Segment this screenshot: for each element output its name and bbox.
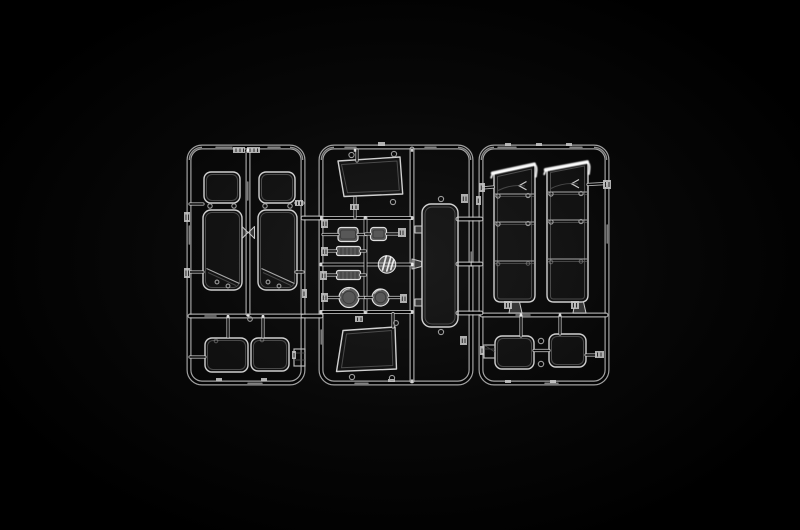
part-number-tab <box>603 180 611 189</box>
quarter-window-pane <box>259 172 295 203</box>
glazing-panel <box>422 204 458 327</box>
part-number-tab <box>595 351 604 358</box>
panel-tab <box>415 299 422 306</box>
sprue-photo: Clear transparent plastic model kit spru… <box>0 0 800 530</box>
product-photo: Clear transparent plastic model kit spru… <box>0 0 800 530</box>
rear-window-pane <box>251 338 289 371</box>
rear-window-pane <box>495 336 534 369</box>
rear-window-pane <box>549 334 586 367</box>
mold-tick <box>505 380 511 383</box>
part-number-tab <box>295 200 303 206</box>
part-number-tab <box>378 142 385 146</box>
part-number-tab <box>355 316 363 322</box>
part-number-tab <box>479 183 485 192</box>
rear-window-pane <box>205 338 248 372</box>
part-number-tab <box>350 204 359 210</box>
part-number-tab <box>504 301 512 309</box>
round-lamp-lens <box>372 289 389 306</box>
door-window-pane <box>258 210 297 290</box>
panel-tab <box>415 226 422 233</box>
mold-tick <box>261 378 267 381</box>
door-window-pane <box>203 210 242 290</box>
mold-tick <box>566 143 572 146</box>
part-number-tab <box>321 219 328 228</box>
part-number-tab <box>571 301 579 309</box>
part-number-tab <box>460 336 467 345</box>
part-number-tab <box>184 268 190 278</box>
round-lamp-lens <box>339 288 359 308</box>
door-glass-bottom <box>337 327 397 372</box>
part-number-tab <box>320 271 327 280</box>
part-number-tab <box>321 247 328 256</box>
part-number-tab <box>184 212 190 222</box>
mold-tick <box>536 143 542 146</box>
part-number-tab <box>400 294 407 303</box>
mold-tick <box>216 378 222 381</box>
part-number-tab <box>321 293 328 302</box>
mold-tick <box>505 143 511 146</box>
quarter-window-pane <box>204 172 240 203</box>
part-number-tab <box>398 228 406 237</box>
part-number-tab <box>461 194 468 203</box>
